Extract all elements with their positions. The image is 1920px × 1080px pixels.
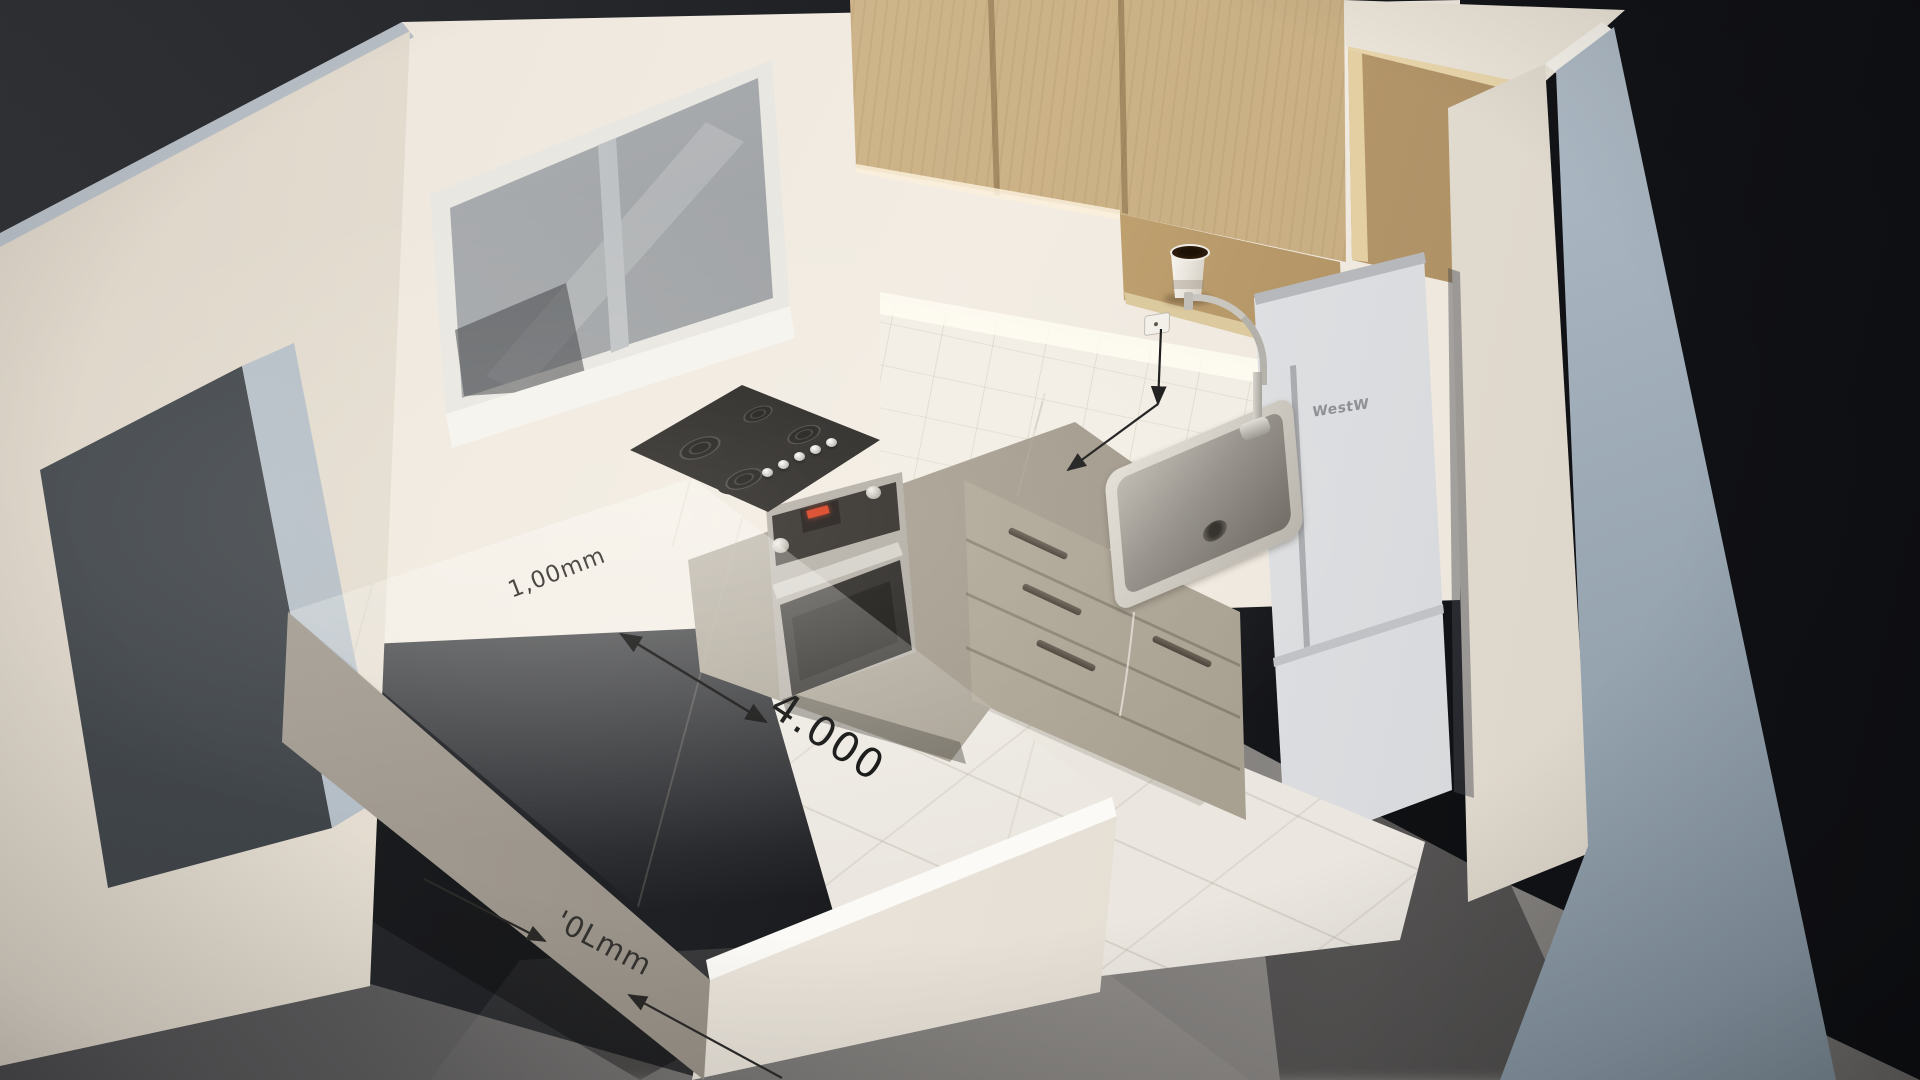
vignette bbox=[0, 0, 1920, 1080]
kitchen-3d-render: WestW bbox=[0, 0, 1920, 1080]
